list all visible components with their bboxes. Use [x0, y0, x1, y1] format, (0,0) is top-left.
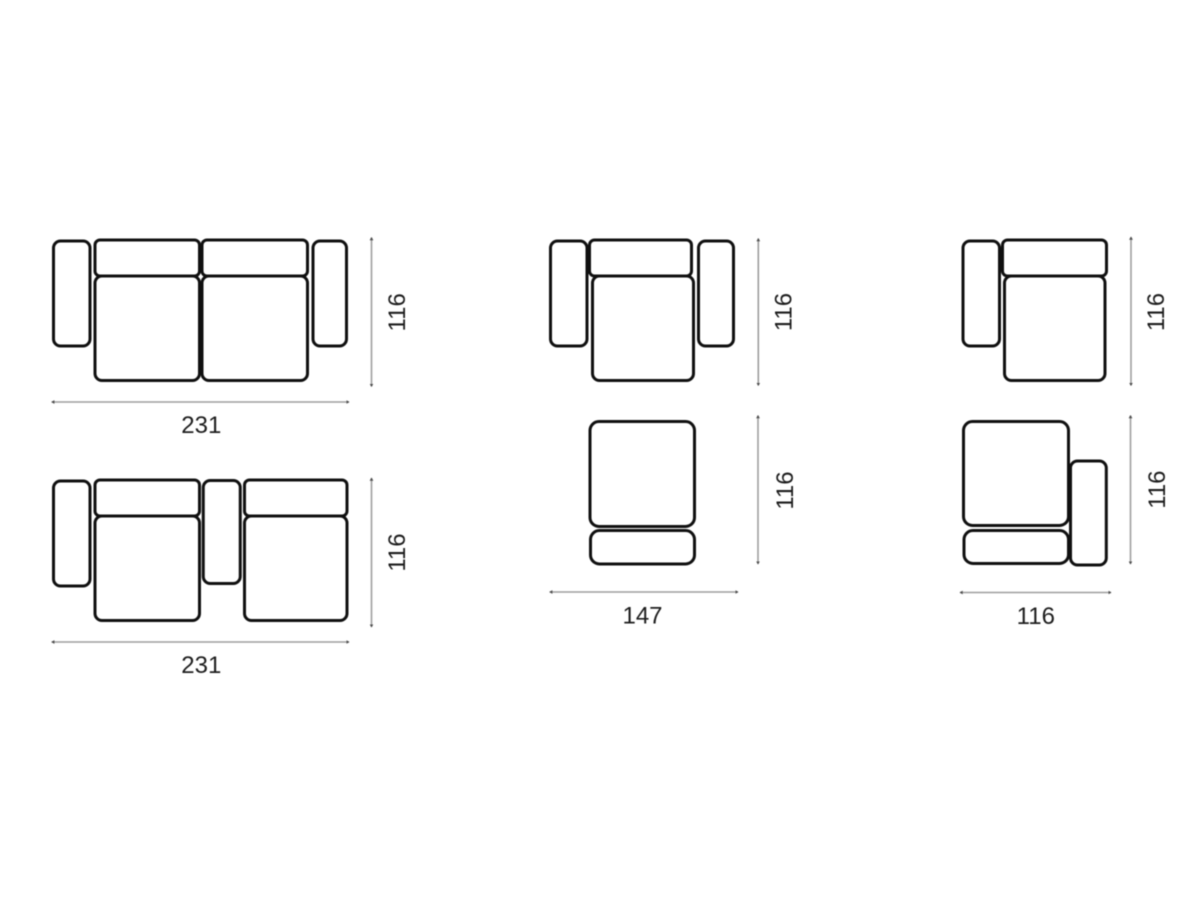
- svg-text:116: 116: [771, 293, 798, 331]
- svg-text:116: 116: [772, 471, 799, 509]
- svg-text:116: 116: [384, 293, 411, 331]
- svg-text:147: 147: [622, 603, 662, 630]
- svg-text:231: 231: [181, 412, 221, 439]
- svg-text:231: 231: [181, 652, 221, 679]
- svg-text:116: 116: [384, 533, 411, 571]
- svg-text:116: 116: [1143, 293, 1170, 331]
- svg-text:116: 116: [1144, 470, 1171, 508]
- svg-text:116: 116: [1017, 603, 1055, 630]
